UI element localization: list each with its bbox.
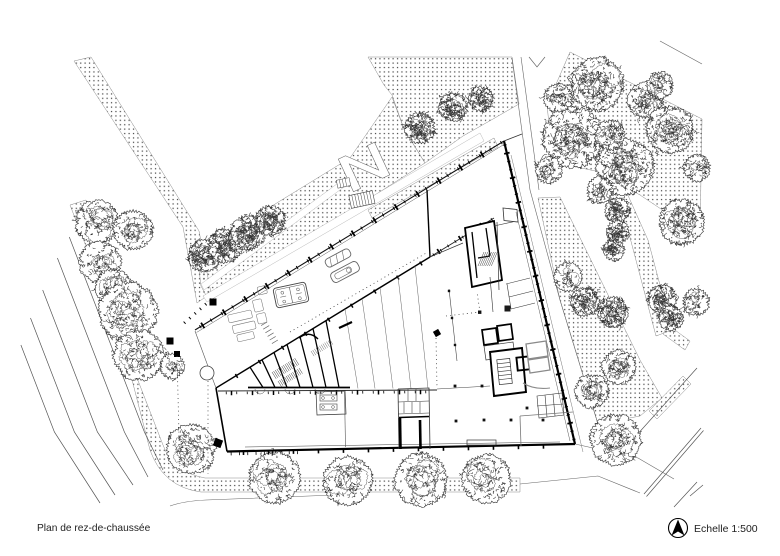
- svg-text:Echelle 1:500: Echelle 1:500: [694, 523, 758, 535]
- svg-text:Plan de rez-de-chaussée: Plan de rez-de-chaussée: [37, 523, 151, 534]
